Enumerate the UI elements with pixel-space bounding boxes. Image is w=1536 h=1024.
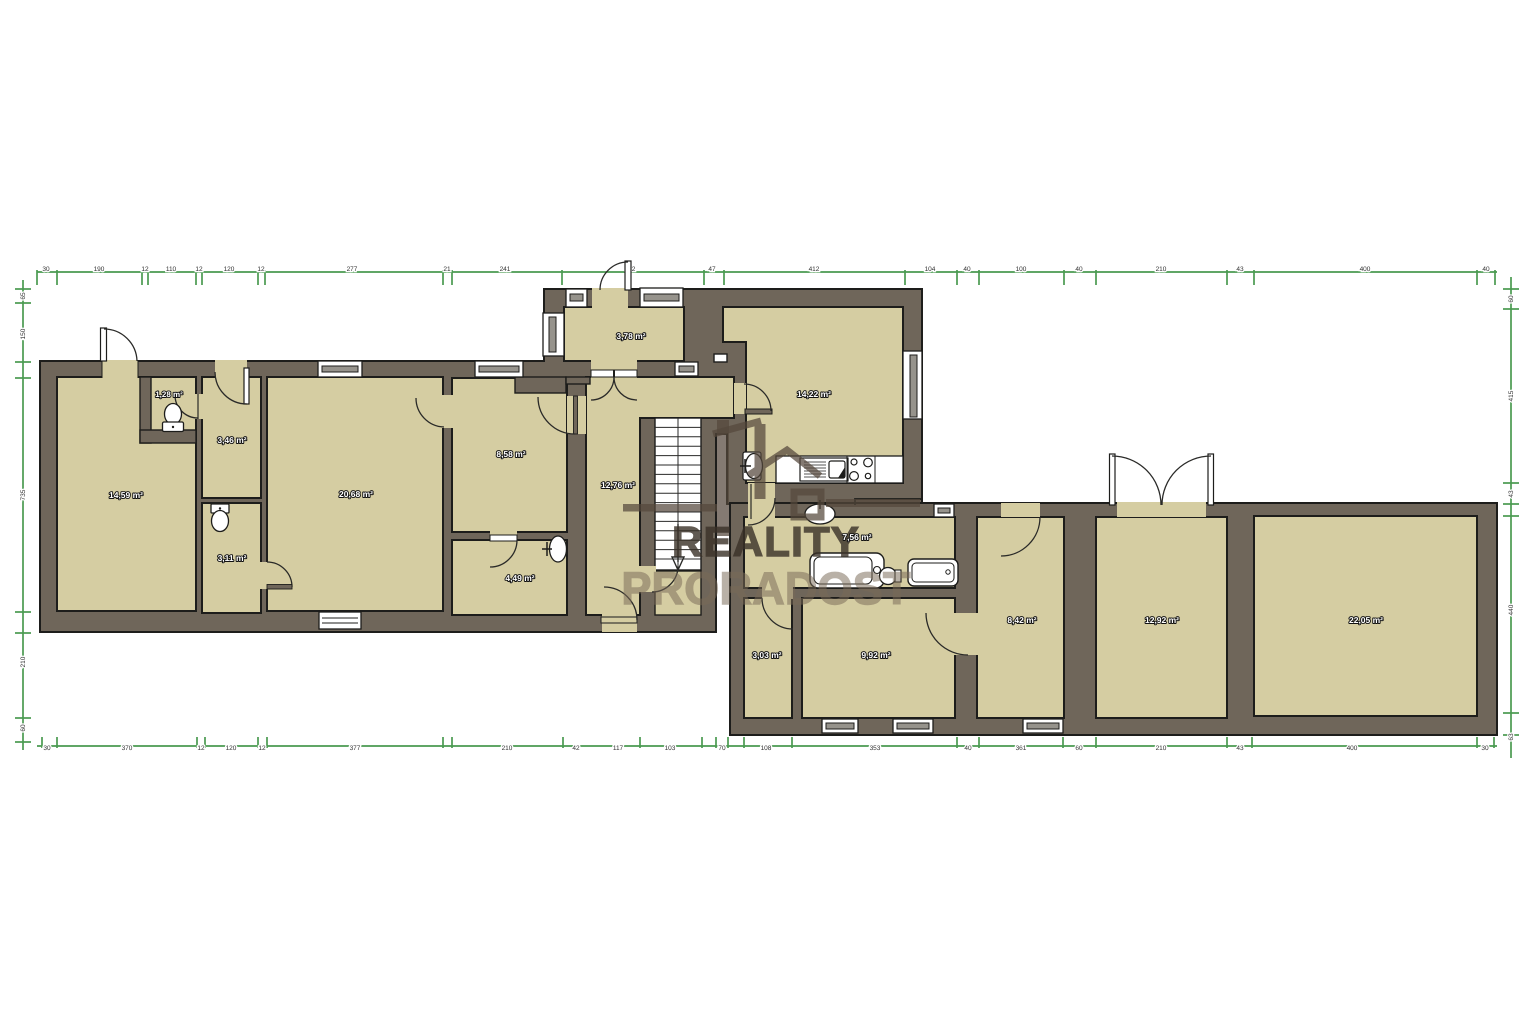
svg-text:361: 361	[1016, 745, 1027, 752]
svg-text:353: 353	[870, 745, 881, 752]
svg-text:735: 735	[20, 489, 27, 500]
svg-text:3,46 m²: 3,46 m²	[217, 435, 246, 445]
svg-text:43: 43	[1508, 490, 1515, 498]
svg-text:REALITY: REALITY	[672, 518, 860, 565]
svg-text:377: 377	[350, 745, 361, 752]
svg-text:108: 108	[761, 745, 772, 752]
svg-text:30: 30	[1481, 745, 1489, 752]
svg-text:210: 210	[1156, 266, 1167, 273]
svg-text:110: 110	[166, 266, 177, 273]
svg-text:150: 150	[20, 328, 27, 339]
svg-text:1,28 m²: 1,28 m²	[155, 390, 183, 399]
svg-text:9,92 m²: 9,92 m²	[861, 650, 890, 660]
svg-text:3,78 m²: 3,78 m²	[616, 331, 645, 341]
svg-text:22,05 m²: 22,05 m²	[1349, 615, 1383, 625]
svg-text:4,49 m²: 4,49 m²	[505, 573, 534, 583]
svg-text:277: 277	[347, 266, 358, 273]
svg-text:100: 100	[1016, 266, 1027, 273]
svg-text:120: 120	[224, 266, 235, 273]
svg-text:12: 12	[258, 745, 266, 752]
svg-text:47: 47	[708, 266, 716, 273]
svg-text:40: 40	[1075, 266, 1083, 273]
svg-text:210: 210	[502, 745, 513, 752]
svg-text:440: 440	[1508, 604, 1515, 615]
svg-text:12: 12	[195, 266, 203, 273]
svg-text:400: 400	[1347, 745, 1358, 752]
svg-text:7,56 m²: 7,56 m²	[842, 532, 871, 542]
svg-text:104: 104	[925, 266, 936, 273]
svg-text:3,03 m²: 3,03 m²	[752, 650, 781, 660]
svg-text:12,76 m²: 12,76 m²	[601, 480, 635, 490]
svg-text:40: 40	[964, 745, 972, 752]
svg-text:43: 43	[1236, 266, 1244, 273]
svg-text:241: 241	[500, 266, 511, 273]
svg-text:43: 43	[1236, 745, 1244, 752]
svg-text:70: 70	[718, 745, 726, 752]
svg-text:370: 370	[122, 745, 133, 752]
svg-text:14,22 m²: 14,22 m²	[797, 389, 831, 399]
svg-text:20,68 m²: 20,68 m²	[339, 489, 373, 499]
svg-text:40: 40	[1482, 266, 1490, 273]
svg-text:30: 30	[42, 266, 50, 273]
svg-text:412: 412	[809, 266, 820, 273]
svg-text:8,58 m²: 8,58 m²	[496, 449, 525, 459]
svg-text:42: 42	[572, 745, 580, 752]
svg-text:30: 30	[43, 745, 51, 752]
svg-text:12: 12	[257, 266, 265, 273]
svg-text:120: 120	[226, 745, 237, 752]
svg-text:12: 12	[141, 266, 149, 273]
svg-text:117: 117	[613, 745, 624, 752]
svg-text:8,42 m²: 8,42 m²	[1007, 615, 1036, 625]
svg-text:400: 400	[1360, 266, 1371, 273]
svg-text:415: 415	[1508, 390, 1515, 401]
svg-text:60: 60	[20, 724, 27, 732]
svg-text:40: 40	[963, 266, 971, 273]
svg-text:65: 65	[20, 292, 27, 300]
svg-text:21: 21	[443, 266, 451, 273]
svg-text:60: 60	[1075, 745, 1083, 752]
svg-text:3,11 m²: 3,11 m²	[218, 553, 247, 563]
svg-text:190: 190	[94, 266, 105, 273]
svg-text:103: 103	[665, 745, 676, 752]
svg-text:12,92 m²: 12,92 m²	[1145, 615, 1179, 625]
svg-text:PRORADOST: PRORADOST	[621, 563, 910, 614]
svg-text:60: 60	[1508, 295, 1515, 303]
svg-text:210: 210	[20, 656, 27, 667]
svg-text:12: 12	[197, 745, 205, 752]
svg-text:210: 210	[1156, 745, 1167, 752]
svg-text:14,59 m²: 14,59 m²	[109, 490, 143, 500]
svg-text:63: 63	[1508, 733, 1515, 741]
